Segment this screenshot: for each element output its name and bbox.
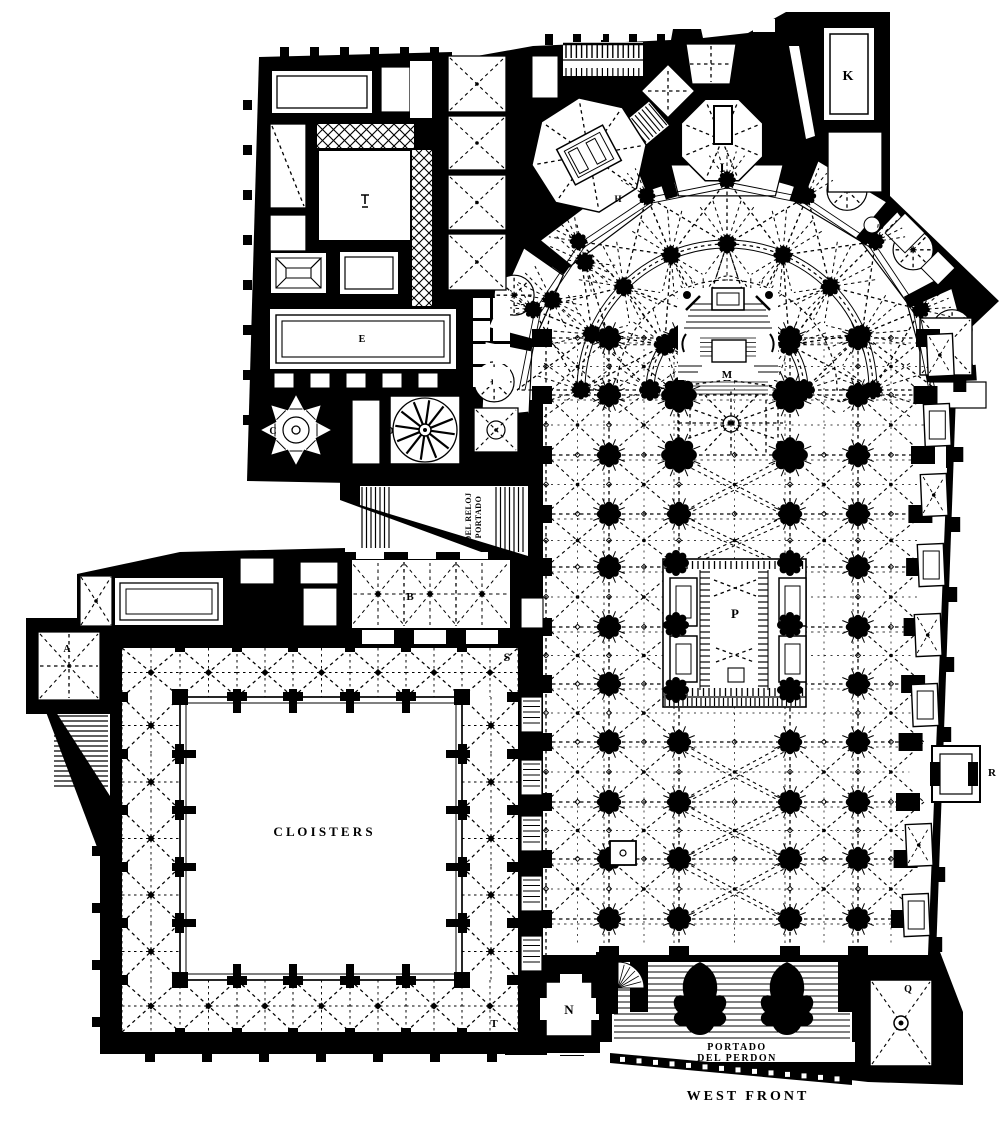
svg-text:A: A [63,644,71,655]
svg-text:E: E [359,334,366,345]
svg-text:M: M [722,369,733,381]
svg-text:PORTADO: PORTADO [474,496,483,539]
svg-text:WEST FRONT: WEST FRONT [687,1089,810,1104]
svg-text:DEL RELOJ: DEL RELOJ [464,492,473,541]
svg-text:D: D [386,426,393,437]
svg-text:H: H [614,194,621,204]
svg-text:R: R [988,767,997,779]
svg-text:C L O I S T E R S: C L O I S T E R S [273,824,372,839]
svg-text:B: B [406,591,414,603]
svg-text:N: N [564,1002,574,1017]
svg-text:Q: Q [904,984,912,995]
svg-text:T: T [490,1018,498,1030]
svg-text:PORTADO: PORTADO [707,1042,766,1053]
svg-text:P: P [731,606,739,621]
svg-text:C: C [269,426,276,437]
svg-text:S: S [504,650,511,664]
svg-text:K: K [843,69,854,84]
